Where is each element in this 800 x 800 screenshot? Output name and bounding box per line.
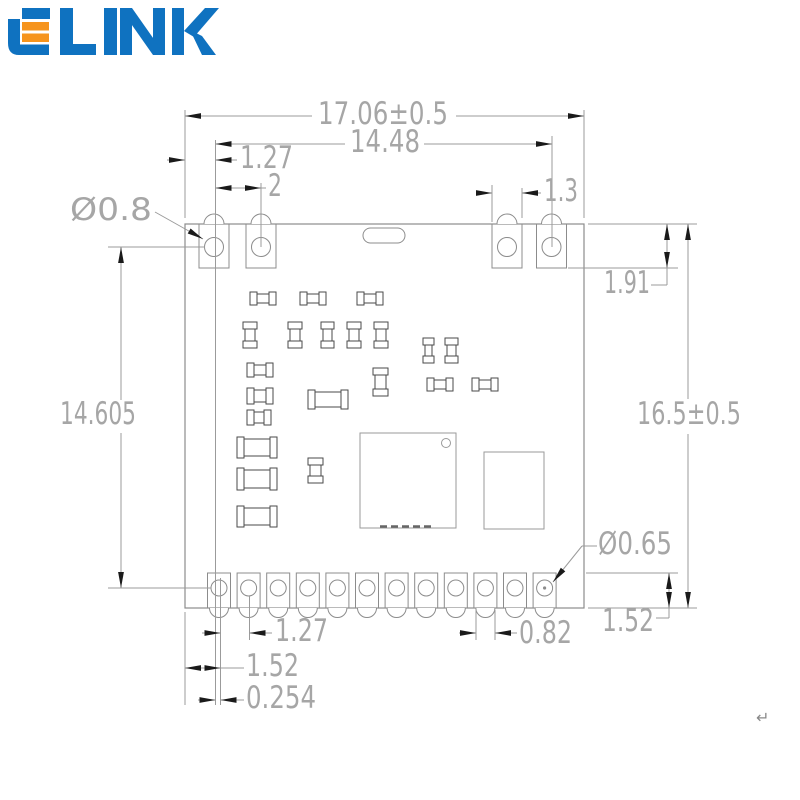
top-pad-hole	[498, 238, 517, 257]
arrowhead	[685, 592, 691, 608]
arrowhead	[205, 630, 221, 636]
dim-hole-bottom: Ø0.65	[598, 526, 672, 562]
smd-chip-body	[254, 390, 266, 402]
smd-chip-body	[479, 380, 491, 389]
smd-chip-cap	[376, 292, 383, 305]
smd-chip-cap	[374, 322, 388, 329]
smd-chip-cap	[427, 378, 434, 391]
bottom-pad-hole	[389, 580, 405, 596]
smd-chip-body	[349, 329, 359, 341]
smd-chip-body	[307, 294, 319, 303]
smd-chip-cap	[472, 378, 479, 391]
smd-chip-cap	[270, 506, 277, 527]
arrowhead	[522, 190, 538, 196]
smd-chip-cap	[373, 368, 388, 375]
dim-hole-top: Ø0.8	[70, 192, 152, 228]
smd-chip-cap	[270, 437, 277, 458]
arrowhead	[664, 252, 670, 268]
arrowhead	[185, 665, 201, 671]
smd-chip-body	[254, 412, 264, 423]
return-mark: ↵	[756, 708, 769, 727]
smd-chip-cap	[321, 322, 334, 329]
smd-chip-body	[434, 380, 446, 389]
logo-orange-bar	[22, 34, 49, 43]
dim-hole-offset: 0.254	[246, 680, 316, 716]
smd-chip-cap	[347, 322, 361, 329]
arrowhead	[216, 185, 232, 191]
smd-chip-body	[375, 375, 386, 389]
arrowhead	[250, 630, 266, 636]
module-body	[185, 224, 584, 608]
dim-offset-top-left: 1.27	[240, 140, 293, 176]
dim-pitch-bottom: 1.27	[275, 613, 328, 649]
arrowhead	[185, 113, 201, 119]
arrowhead	[568, 113, 584, 119]
top-pad-notch	[497, 214, 517, 224]
bottom-pad-hole	[477, 580, 493, 596]
bottom-pad-notch	[476, 608, 495, 618]
arrowhead	[205, 665, 221, 671]
arrowhead	[221, 697, 237, 703]
bottom-pad-notch	[446, 608, 465, 618]
logo-orange-bar	[22, 22, 49, 31]
bottom-pad-hole	[211, 580, 227, 596]
smd-chip-body	[254, 365, 266, 375]
bottom-pad-notch	[239, 608, 258, 618]
main-ic	[360, 433, 456, 528]
bottom-pad-notch	[358, 608, 377, 618]
smd-chip-cap	[270, 468, 277, 490]
logo-letter-l	[60, 8, 96, 55]
dim-pad-width-right: 1.3	[544, 173, 578, 209]
bottom-pad-notch	[387, 608, 406, 618]
technical-drawing: 17.06±0.5 14.48 1.27 2 1.3 Ø0.8 1.91 16.…	[0, 0, 800, 800]
dim-notch-bottom: 0.82	[519, 615, 572, 651]
bottom-pad-hole	[300, 580, 316, 596]
smd-chip-cap	[266, 388, 273, 404]
arrowhead	[200, 697, 216, 703]
smd-chip-cap	[341, 390, 348, 409]
smd-chip-cap	[445, 338, 458, 345]
smd-chip-cap	[308, 458, 323, 465]
smd-chip-cap	[237, 437, 244, 458]
smd-chip-cap	[347, 341, 361, 348]
smd-chip-cap	[247, 363, 254, 377]
bottom-pad-hole	[241, 580, 257, 596]
smd-chip-cap	[446, 378, 453, 391]
dim-width-pads: 14.48	[350, 124, 420, 160]
arrowhead	[118, 247, 124, 263]
smd-chip-body	[257, 294, 269, 303]
bottom-pad-notch	[210, 608, 229, 618]
dim-pitch-top: 2	[268, 168, 282, 204]
smd-chip-body	[315, 392, 341, 407]
secondary-component	[484, 452, 544, 529]
logo-letter-i	[104, 8, 117, 55]
dim-height-total: 16.5±0.5	[637, 396, 741, 432]
smd-chip-cap	[357, 292, 364, 305]
smd-chip-cap	[288, 341, 302, 348]
bottom-pad-hole	[329, 580, 345, 596]
arrowhead	[245, 185, 261, 191]
arrowhead	[536, 141, 552, 147]
smd-chip-cap	[266, 363, 273, 377]
bottom-pad-hole	[359, 580, 375, 596]
bottom-pad-notch	[328, 608, 347, 618]
smd-chip-cap	[308, 476, 323, 483]
logo-letter-e	[8, 8, 50, 55]
elink-logo	[8, 8, 219, 55]
dim-offset-bottom-left: 1.52	[246, 648, 299, 684]
arrowhead	[664, 224, 670, 240]
smd-chip-body	[290, 329, 300, 341]
bottom-pad-notch	[417, 608, 436, 618]
smd-chip-cap	[237, 506, 244, 527]
arrowhead	[666, 592, 672, 608]
dim-height-holes: 14.605	[60, 396, 136, 432]
arrowhead	[188, 228, 205, 241]
smd-chip-body	[245, 329, 255, 341]
smd-chip-body	[447, 345, 456, 356]
bottom-pad-hole	[448, 580, 464, 596]
logo-letter-n	[120, 8, 165, 55]
smd-chip-cap	[247, 410, 254, 425]
smd-chip-body	[244, 439, 270, 456]
bottom-pad-hole-center	[543, 586, 546, 589]
smd-chip-cap	[247, 388, 254, 404]
arrowhead	[666, 573, 672, 589]
arrowhead	[460, 630, 476, 636]
smd-chip-cap	[243, 322, 257, 329]
top-pad	[492, 224, 522, 268]
arrowhead	[216, 141, 232, 147]
ic-pin1-marker	[442, 439, 451, 448]
smd-chip-cap	[288, 322, 302, 329]
arrowhead	[169, 157, 185, 163]
smd-chip-body	[364, 294, 376, 303]
document-page: 17.06±0.5 14.48 1.27 2 1.3 Ø0.8 1.91 16.…	[0, 0, 800, 800]
dimension-labels: 17.06±0.5 14.48 1.27 2 1.3 Ø0.8 1.91 16.…	[60, 96, 769, 727]
smd-chip-body	[376, 329, 386, 341]
smd-chip-cap	[445, 356, 458, 363]
smd-chip-cap	[308, 390, 315, 409]
arrowhead	[216, 157, 232, 163]
smd-chip-body	[310, 465, 321, 476]
arrowhead	[685, 224, 691, 240]
module-slot	[363, 228, 405, 243]
smd-chip-cap	[321, 341, 334, 348]
smd-chip-cap	[300, 292, 307, 305]
dim-pad-height-top: 1.91	[604, 265, 650, 301]
smd-chip-cap	[374, 341, 388, 348]
bottom-pad-hole	[418, 580, 434, 596]
bottom-pad-hole	[507, 580, 523, 596]
top-pad-notch	[204, 214, 224, 224]
smd-chip-cap	[373, 389, 388, 396]
smd-chip-cap	[319, 292, 326, 305]
arrowhead	[495, 630, 511, 636]
top-pad-hole	[205, 238, 224, 257]
smd-chip-body	[244, 508, 270, 525]
smd-chip-body	[323, 329, 332, 341]
smd-chip-cap	[264, 410, 271, 425]
arrowhead	[476, 190, 492, 196]
smd-chip-cap	[423, 356, 434, 363]
smd-chip-cap	[250, 292, 257, 305]
bottom-pad-hole	[270, 580, 286, 596]
smd-chip-body	[244, 470, 270, 488]
top-pad	[199, 224, 229, 268]
pcb-module-outline	[185, 214, 584, 618]
smd-chip-cap	[423, 338, 434, 345]
smd-chip-body	[425, 345, 432, 356]
arrowhead	[118, 572, 124, 588]
smd-chip-cap	[269, 292, 276, 305]
smd-chip-cap	[491, 378, 498, 391]
smd-chip-cap	[243, 341, 257, 348]
dim-pad-height-bottom: 1.52	[602, 603, 654, 639]
smd-chip-cap	[237, 468, 244, 490]
logo-letter-k	[172, 8, 219, 55]
